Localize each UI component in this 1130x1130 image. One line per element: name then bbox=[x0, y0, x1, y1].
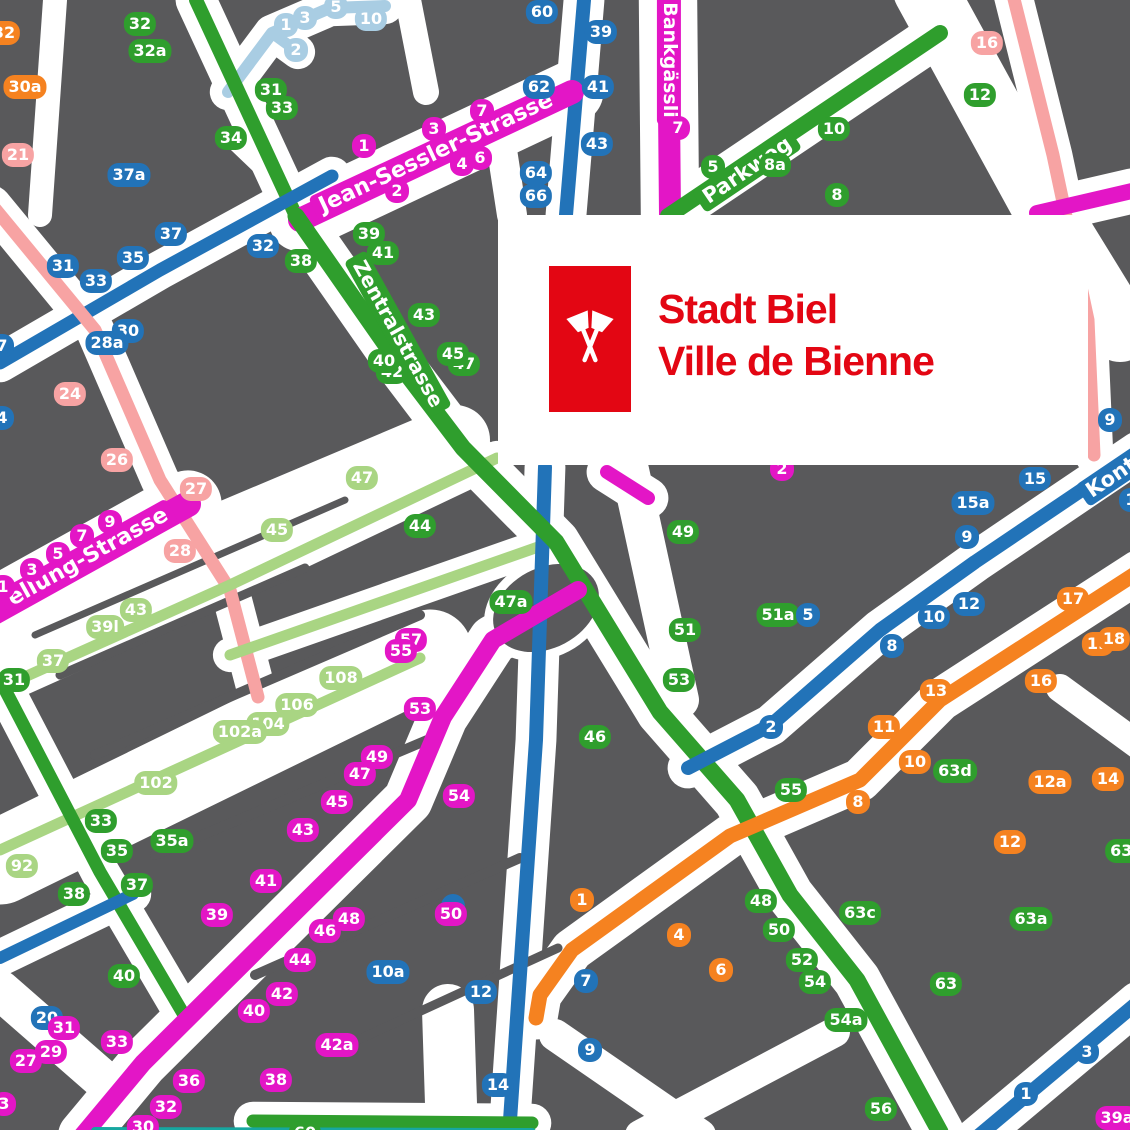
stadt-biel-logo bbox=[549, 266, 631, 412]
bankgaessli-road-line bbox=[668, 0, 670, 215]
white-street bbox=[40, 0, 55, 215]
green-route-bottom-line bbox=[253, 1121, 532, 1123]
banner-title-line1: Stadt Biel bbox=[658, 283, 934, 335]
map-roads-canvas bbox=[0, 0, 1130, 1130]
white-street bbox=[502, 150, 512, 215]
banner-title-line2: Ville de Bienne bbox=[658, 335, 934, 387]
city-map[interactable]: Jean-Sessler-StrasseZentralstrasseBankgä… bbox=[0, 0, 1130, 1130]
crossed-axes-icon bbox=[558, 307, 622, 371]
white-street bbox=[448, 1010, 452, 1130]
stadt-biel-banner: Stadt Biel Ville de Bienne bbox=[498, 215, 1088, 465]
white-street bbox=[408, 0, 426, 92]
